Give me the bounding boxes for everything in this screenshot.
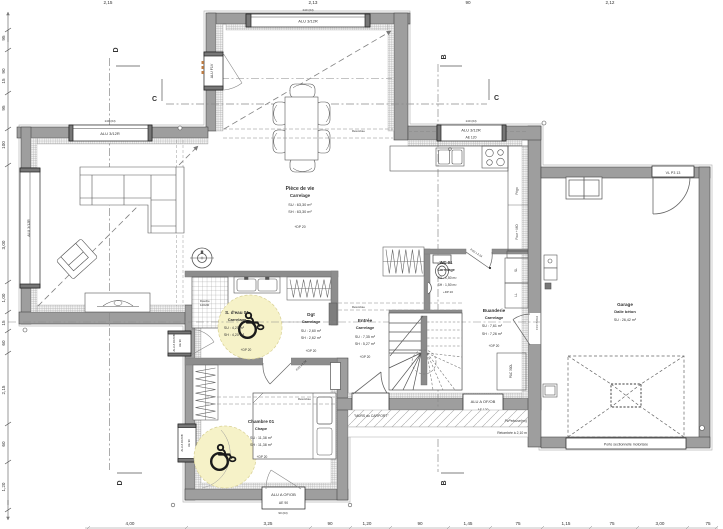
svg-text:3,00: 3,00 — [1, 240, 6, 249]
svg-text:Carrelage: Carrelage — [302, 319, 321, 324]
svg-text:WC 01: WC 01 — [440, 260, 453, 265]
svg-text:SU : 63,30 m²: SU : 63,30 m² — [288, 203, 312, 207]
svg-text:Retombée: Retombée — [352, 305, 365, 309]
svg-text:ALU A OF/OB: ALU A OF/OB — [471, 399, 496, 404]
svg-text:SH : 2,62 m²: SH : 2,62 m² — [301, 336, 322, 340]
svg-text:SH : 5,27 m²: SH : 5,27 m² — [355, 342, 376, 346]
svg-text:2,12: 2,12 — [606, 0, 615, 5]
svg-text:4,00: 4,00 — [126, 521, 135, 526]
svg-text:Carrelage: Carrelage — [290, 193, 311, 198]
svg-text:90: 90 — [1, 68, 6, 74]
svg-text:Dalle béton: Dalle béton — [614, 309, 636, 314]
svg-text:ALU 3/12R: ALU 3/12R — [100, 131, 120, 136]
svg-text:Four + MO: Four + MO — [515, 224, 519, 240]
svg-text:2,13: 2,13 — [309, 0, 318, 5]
svg-text:AE 120: AE 120 — [465, 136, 476, 140]
svg-text:Dgt: Dgt — [307, 312, 315, 317]
svg-text:1,15: 1,15 — [562, 521, 571, 526]
svg-text:ALU A OF/OB: ALU A OF/OB — [172, 334, 176, 351]
svg-text:1,20: 1,20 — [1, 482, 6, 491]
svg-text:SU : 7,61 m²: SU : 7,61 m² — [482, 324, 503, 328]
svg-text:SH : 63,30 m²: SH : 63,30 m² — [288, 210, 312, 214]
svg-text:SH : 11,38 m²: SH : 11,38 m² — [250, 443, 273, 447]
svg-text:90: 90 — [417, 521, 423, 526]
svg-text:D: D — [117, 480, 124, 485]
svg-text:2,15: 2,15 — [104, 0, 113, 5]
svg-text:90 (tbl): 90 (tbl) — [278, 511, 287, 515]
svg-text:ALU A OF/OB: ALU A OF/OB — [180, 434, 184, 451]
svg-text:SU : 2,60 m²: SU : 2,60 m² — [301, 329, 322, 333]
svg-text:1,00: 1,00 — [1, 293, 6, 302]
svg-text:Pièce de vie: Pièce de vie — [286, 186, 315, 192]
svg-text:Buanderie: Buanderie — [483, 308, 506, 313]
svg-text:1,45: 1,45 — [464, 521, 473, 526]
svg-text:D: D — [113, 47, 120, 52]
svg-text:SH : 7,26 m²: SH : 7,26 m² — [482, 332, 503, 336]
svg-text:SU : 11,38 m²: SU : 11,38 m² — [250, 436, 273, 440]
svg-text:Chambre 01: Chambre 01 — [248, 419, 275, 424]
svg-text:Chape: Chape — [255, 426, 268, 431]
svg-text:140 (tbl): 140 (tbl) — [104, 119, 115, 123]
svg-text:ALU A OF/OB: ALU A OF/OB — [271, 492, 296, 497]
svg-text:S. d'eau 01: S. d'eau 01 — [225, 310, 249, 315]
svg-text:60: 60 — [1, 441, 6, 447]
svg-text:3,25: 3,25 — [264, 521, 273, 526]
svg-text:95: 95 — [1, 105, 6, 111]
svg-text:Retombée: Retombée — [298, 397, 311, 401]
svg-text:15: 15 — [1, 320, 6, 326]
svg-text:Carrelage: Carrelage — [356, 325, 375, 330]
svg-text:C: C — [494, 95, 499, 102]
svg-text:ALU 3/12R: ALU 3/12R — [27, 219, 31, 237]
svg-text:1,20: 1,20 — [363, 521, 372, 526]
svg-text:Garage: Garage — [617, 302, 633, 307]
svg-text:AE 90: AE 90 — [279, 501, 288, 505]
svg-text:"MURS du CARPORT": "MURS du CARPORT" — [354, 414, 389, 418]
svg-text:B: B — [441, 480, 448, 485]
svg-text:+DP 20: +DP 20 — [443, 290, 453, 294]
svg-text:Frigo: Frigo — [515, 187, 519, 194]
svg-text:P.93 x 2.04: P.93 x 2.04 — [535, 316, 539, 330]
svg-text:SH : 4,20 m²: SH : 4,20 m² — [224, 333, 245, 337]
svg-text:SH : 1,50 m²: SH : 1,50 m² — [437, 283, 457, 287]
svg-text:+DP 20: +DP 20 — [257, 455, 268, 459]
svg-text:ALU F1V: ALU F1V — [210, 63, 214, 78]
svg-text:75: 75 — [705, 521, 711, 526]
svg-text:Carrelage: Carrelage — [437, 268, 455, 272]
svg-text:VL P3 13: VL P3 13 — [666, 171, 681, 175]
svg-text:LL: LL — [514, 293, 518, 297]
svg-text:SU : 1,50 m²: SU : 1,50 m² — [437, 276, 457, 280]
svg-text:SU : 4,20 m²: SU : 4,20 m² — [224, 326, 245, 330]
svg-text:ALU 3/12R: ALU 3/12R — [298, 19, 318, 24]
svg-text:+DP 20: +DP 20 — [306, 349, 317, 353]
svg-text:+DP 20: +DP 20 — [294, 225, 305, 229]
svg-text:SL: SL — [514, 268, 518, 272]
svg-text:+DP 20: +DP 20 — [360, 355, 371, 359]
svg-text:C: C — [152, 96, 157, 103]
svg-text:2,15: 2,15 — [1, 385, 6, 394]
svg-text:120x90: 120x90 — [200, 303, 210, 307]
svg-text:PzPelouse(m²): PzPelouse(m²) — [505, 419, 527, 423]
svg-text:Carrelage: Carrelage — [228, 317, 247, 322]
svg-text:+DP 20: +DP 20 — [489, 344, 500, 348]
svg-text:PAC 300L: PAC 300L — [509, 364, 513, 379]
svg-text:Retombée: Retombée — [352, 129, 365, 133]
svg-text:+DP 20: +DP 20 — [241, 348, 252, 352]
svg-text:AE 90: AE 90 — [187, 439, 191, 447]
svg-text:Carrelage: Carrelage — [485, 315, 504, 320]
svg-text:AE 90: AE 90 — [178, 339, 182, 347]
svg-text:100: 100 — [1, 141, 6, 149]
svg-text:75: 75 — [515, 521, 521, 526]
svg-text:60: 60 — [1, 340, 6, 346]
svg-text:90: 90 — [465, 0, 471, 5]
svg-text:95: 95 — [1, 35, 6, 41]
svg-text:SU : 7,35 m²: SU : 7,35 m² — [355, 335, 376, 339]
svg-text:75: 75 — [609, 521, 615, 526]
svg-text:SU : 26,42 m²: SU : 26,42 m² — [614, 318, 637, 322]
svg-text:15: 15 — [1, 78, 6, 84]
svg-text:3,00: 3,00 — [656, 521, 665, 526]
svg-text:90: 90 — [327, 521, 333, 526]
svg-text:140 (tbl): 140 (tbl) — [465, 119, 476, 123]
svg-text:Porte sectionnelle motorisée: Porte sectionnelle motorisée — [604, 443, 648, 447]
svg-text:ALU 3/12R: ALU 3/12R — [461, 128, 481, 133]
svg-text:Entrée: Entrée — [358, 318, 373, 323]
svg-text:240 (tbl): 240 (tbl) — [302, 8, 313, 12]
svg-text:Retombée à 2,10 m: Retombée à 2,10 m — [497, 431, 527, 435]
svg-text:B: B — [441, 54, 448, 59]
